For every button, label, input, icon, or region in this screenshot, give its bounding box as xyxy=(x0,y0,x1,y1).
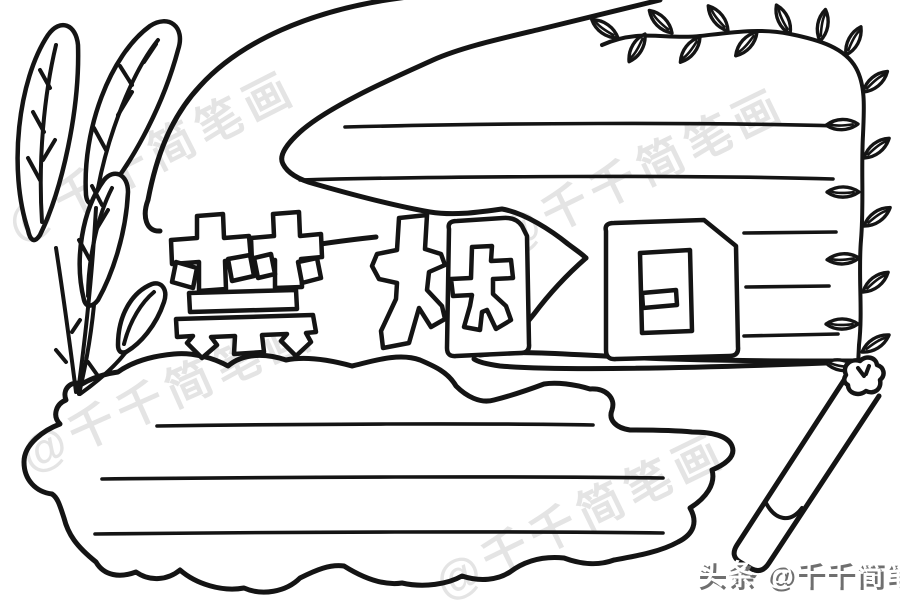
writing-line xyxy=(157,424,593,426)
title-bubble-text xyxy=(171,212,738,359)
left-leaves xyxy=(18,21,180,394)
attribution-text: 头条 @千千简笔画 xyxy=(696,558,900,590)
watermark-text: @千千简笔画 xyxy=(427,423,735,600)
title-char-jin xyxy=(171,212,322,358)
poster-drawing: @千千简笔画 @千千简笔画 @千千简笔画 @千千简笔画 xyxy=(0,0,900,600)
toutiao-attribution: 头条 @千千简笔画 头条 @千千简笔画 xyxy=(696,558,900,593)
handdrawn-poster: 禁烟日 @千千简笔画 @千千简笔画 @千千简笔画 @千千简笔画 xyxy=(0,0,900,600)
writing-line xyxy=(744,232,836,233)
writing-line xyxy=(95,532,663,534)
writing-line xyxy=(102,477,663,479)
title-char-ri xyxy=(606,220,738,359)
writing-line xyxy=(744,334,838,336)
cigarette-filter-line xyxy=(766,503,802,518)
title-char-yan xyxy=(372,215,529,356)
writing-line xyxy=(746,286,829,287)
cigarette-drawing xyxy=(734,358,883,571)
